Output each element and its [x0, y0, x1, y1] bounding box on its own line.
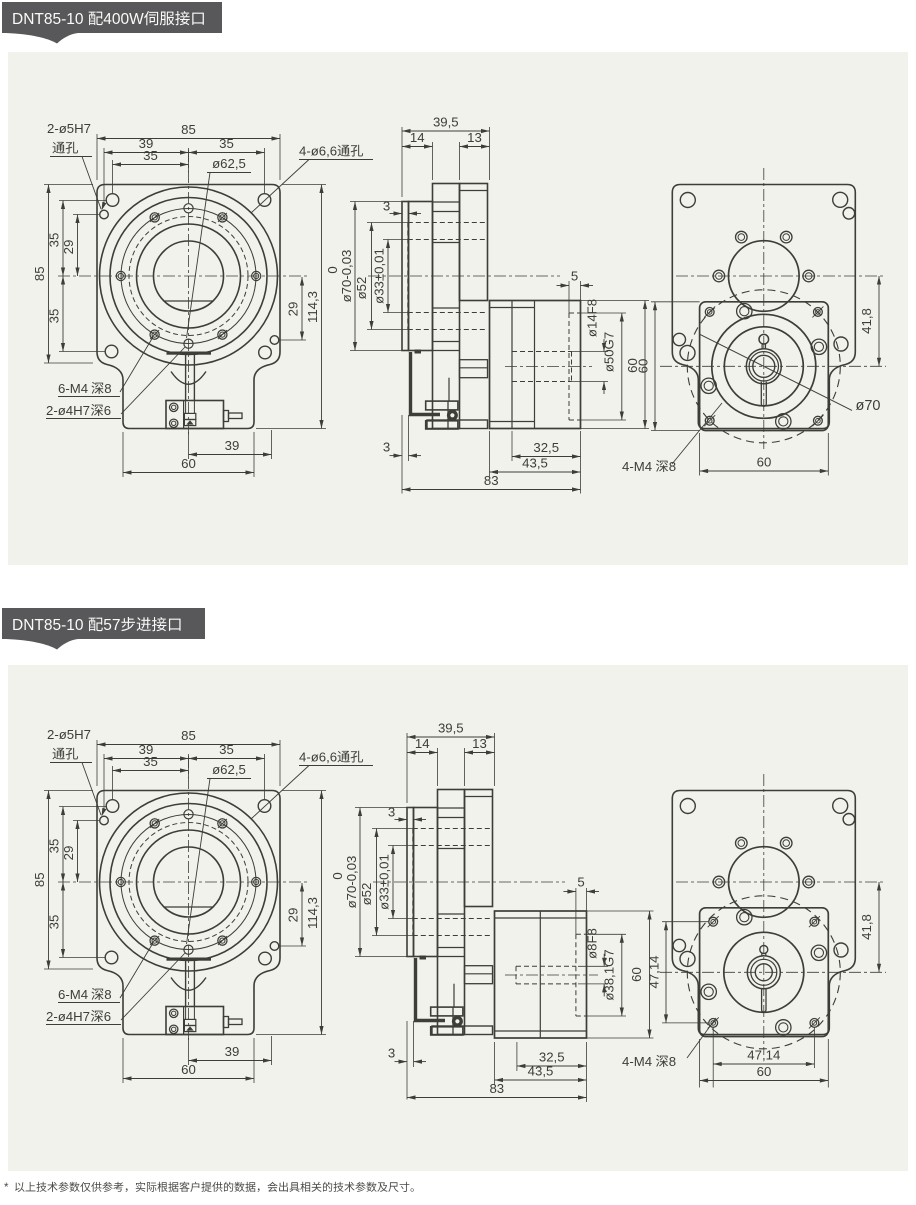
svg-text:60: 60: [181, 456, 196, 471]
svg-text:32,5: 32,5: [533, 440, 559, 455]
svg-text:ø50G7: ø50G7: [601, 332, 616, 372]
svg-text:ø8F8: ø8F8: [585, 928, 600, 959]
svg-text:3: 3: [383, 199, 390, 214]
svg-text:8: 8: [669, 459, 676, 474]
svg-text:35: 35: [47, 839, 62, 854]
svg-text:6: 6: [104, 1009, 111, 1024]
svg-text:2-ø5H7: 2-ø5H7: [47, 121, 91, 136]
svg-text:57: 57: [103, 617, 120, 634]
svg-text:39: 39: [225, 438, 240, 453]
svg-text:DNT85-10: DNT85-10: [12, 11, 84, 28]
svg-text:4-M4: 4-M4: [622, 459, 652, 474]
svg-text:85: 85: [32, 872, 47, 887]
svg-text:114,3: 114,3: [305, 897, 320, 929]
svg-text:85: 85: [181, 728, 196, 743]
svg-text:85: 85: [181, 122, 196, 137]
svg-text:3: 3: [388, 1046, 395, 1061]
svg-text:13: 13: [472, 736, 487, 751]
svg-text:4-ø6,6: 4-ø6,6: [299, 144, 337, 159]
svg-text:ø70-0,03: ø70-0,03: [344, 856, 359, 909]
svg-text:13: 13: [467, 130, 482, 145]
svg-text:2-ø5H7: 2-ø5H7: [47, 727, 91, 742]
svg-text:14: 14: [410, 130, 425, 145]
svg-text:ø62,5: ø62,5: [212, 762, 246, 777]
svg-text:8: 8: [104, 987, 111, 1002]
svg-text:47,14: 47,14: [647, 955, 662, 988]
svg-text:32,5: 32,5: [539, 1050, 565, 1065]
svg-text:60: 60: [757, 1064, 772, 1079]
svg-text:8: 8: [104, 381, 111, 396]
svg-text:14: 14: [415, 736, 430, 751]
svg-text:41,8: 41,8: [859, 914, 874, 940]
svg-text:400W: 400W: [103, 11, 144, 28]
svg-text:5: 5: [571, 269, 578, 284]
svg-text:35: 35: [143, 148, 158, 163]
svg-text:ø52: ø52: [359, 883, 374, 906]
svg-text:41,8: 41,8: [859, 308, 874, 334]
svg-text:83: 83: [484, 473, 499, 488]
svg-text:5: 5: [577, 875, 584, 890]
svg-text:ø70: ø70: [856, 398, 881, 414]
svg-text:83: 83: [489, 1081, 504, 1096]
svg-text:ø38,1G7: ø38,1G7: [601, 949, 616, 1000]
svg-text:6: 6: [104, 403, 111, 418]
svg-text:35: 35: [219, 742, 234, 757]
svg-text:*: *: [4, 1182, 9, 1194]
svg-text:29: 29: [61, 846, 76, 861]
svg-text:35: 35: [143, 754, 158, 769]
svg-text:ø52: ø52: [354, 277, 369, 300]
svg-text:0: 0: [325, 266, 340, 273]
svg-text:60: 60: [629, 967, 644, 982]
svg-text:3: 3: [388, 805, 395, 820]
svg-text:39,5: 39,5: [433, 115, 459, 130]
svg-text:29: 29: [286, 302, 301, 317]
svg-text:43,5: 43,5: [528, 1064, 554, 1079]
svg-text:39,5: 39,5: [438, 721, 464, 736]
svg-text:43,5: 43,5: [522, 456, 548, 471]
svg-text:ø14F8: ø14F8: [585, 299, 600, 337]
svg-text:6-M4: 6-M4: [58, 987, 88, 1002]
svg-text:4-ø6,6: 4-ø6,6: [299, 750, 337, 765]
svg-text:0: 0: [330, 872, 345, 879]
svg-text:6-M4: 6-M4: [58, 381, 88, 396]
svg-text:60: 60: [181, 1062, 196, 1077]
svg-text:35: 35: [47, 233, 62, 248]
svg-text:35: 35: [47, 309, 62, 324]
svg-text:ø70-0,03: ø70-0,03: [339, 250, 354, 303]
svg-text:35: 35: [219, 136, 234, 151]
svg-text:29: 29: [61, 240, 76, 255]
svg-text:DNT85-10: DNT85-10: [12, 617, 84, 634]
svg-text:60: 60: [636, 359, 651, 374]
svg-text:29: 29: [286, 908, 301, 923]
svg-text:3: 3: [383, 440, 390, 455]
svg-text:47,14: 47,14: [747, 1048, 780, 1063]
svg-text:2-ø4H7: 2-ø4H7: [46, 403, 90, 418]
svg-text:4-M4: 4-M4: [622, 1054, 652, 1069]
svg-text:39: 39: [225, 1044, 240, 1059]
svg-text:ø62,5: ø62,5: [212, 156, 246, 171]
svg-text:114,3: 114,3: [305, 291, 320, 323]
svg-text:ø33±0,01: ø33±0,01: [377, 854, 392, 910]
svg-text:35: 35: [47, 915, 62, 930]
svg-text:8: 8: [669, 1054, 676, 1069]
svg-text:2-ø4H7: 2-ø4H7: [46, 1009, 90, 1024]
svg-text:85: 85: [32, 266, 47, 281]
svg-text:60: 60: [757, 455, 772, 470]
svg-text:ø33±0,01: ø33±0,01: [372, 248, 387, 304]
